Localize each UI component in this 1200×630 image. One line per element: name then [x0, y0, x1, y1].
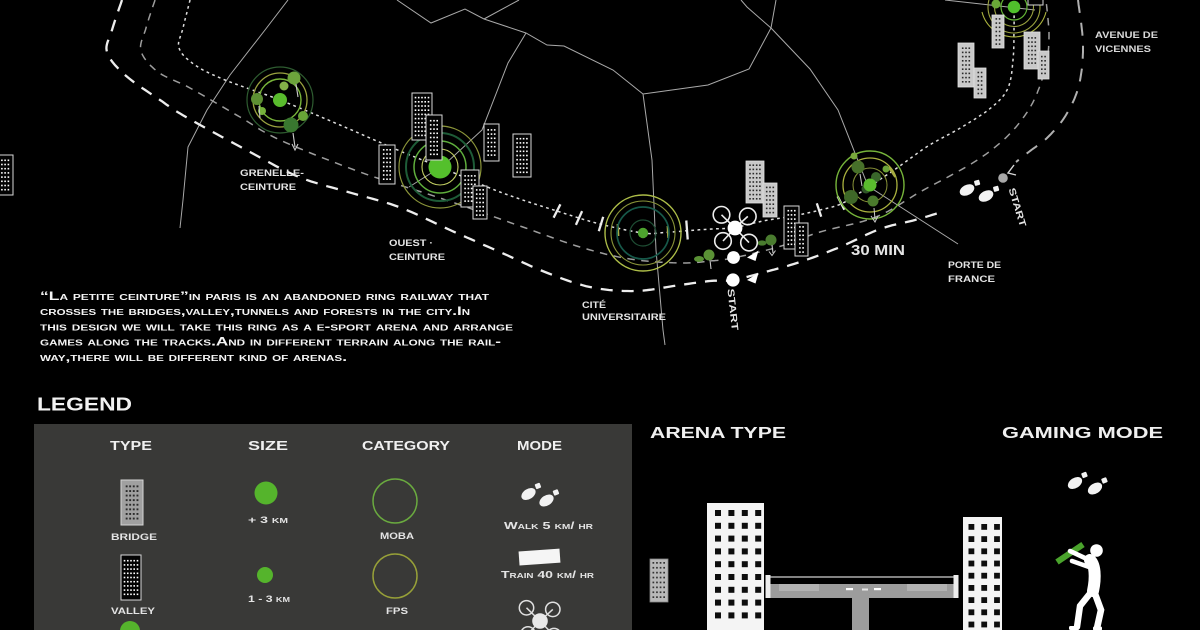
svg-text:CITÉ: CITÉ [582, 300, 606, 311]
svg-text:ARENA TYPE: ARENA TYPE [650, 425, 786, 442]
svg-text:CEINTURE: CEINTURE [389, 252, 445, 263]
svg-text:GRENELLE-: GRENELLE- [240, 168, 304, 179]
svg-text:GAMING MODE: GAMING MODE [1002, 425, 1163, 442]
svg-text:CEINTURE: CEINTURE [240, 182, 296, 193]
svg-text:FRANCE: FRANCE [948, 274, 995, 285]
svg-text:1 - 3 km: 1 - 3 km [248, 594, 290, 605]
svg-text:VICENNES: VICENNES [1095, 44, 1151, 55]
svg-text:this design we will take this: this design we will take this ring as a … [40, 319, 514, 333]
svg-text:MODE: MODE [517, 438, 562, 453]
svg-text:FPS: FPS [386, 606, 408, 617]
svg-text:VALLEY: VALLEY [111, 606, 156, 617]
svg-text:BRIDGE: BRIDGE [111, 532, 157, 543]
svg-text:Train 40 km/ hr: Train 40 km/ hr [501, 570, 594, 581]
svg-text:crosses the bridges,valley,tun: crosses the bridges,valley,tunnels and f… [40, 304, 470, 318]
svg-text:+ 3 km: + 3 km [248, 515, 288, 526]
svg-text:UNIVERSITAIRE: UNIVERSITAIRE [582, 312, 666, 323]
svg-text:games along the tracks.And in: games along the tracks.And in different … [40, 335, 501, 349]
svg-text:LEGEND: LEGEND [37, 394, 132, 415]
svg-text:AVENUE DE: AVENUE DE [1095, 30, 1158, 41]
svg-text:MOBA: MOBA [380, 531, 414, 542]
svg-text:TYPE: TYPE [110, 438, 152, 453]
svg-text:Walk 5 km/ hr: Walk 5 km/ hr [504, 521, 593, 532]
svg-text:“La petite ceinture”in paris i: “La petite ceinture”in paris is an aband… [40, 289, 489, 303]
svg-text:CATEGORY: CATEGORY [362, 438, 450, 453]
svg-text:OUEST ·: OUEST · [389, 238, 433, 249]
svg-text:way,there will be different ki: way,there will be different kind of aren… [40, 350, 347, 364]
svg-text:PORTE DE: PORTE DE [948, 260, 1001, 271]
svg-text:30 MIN: 30 MIN [851, 243, 905, 259]
svg-text:SIZE: SIZE [248, 438, 288, 453]
